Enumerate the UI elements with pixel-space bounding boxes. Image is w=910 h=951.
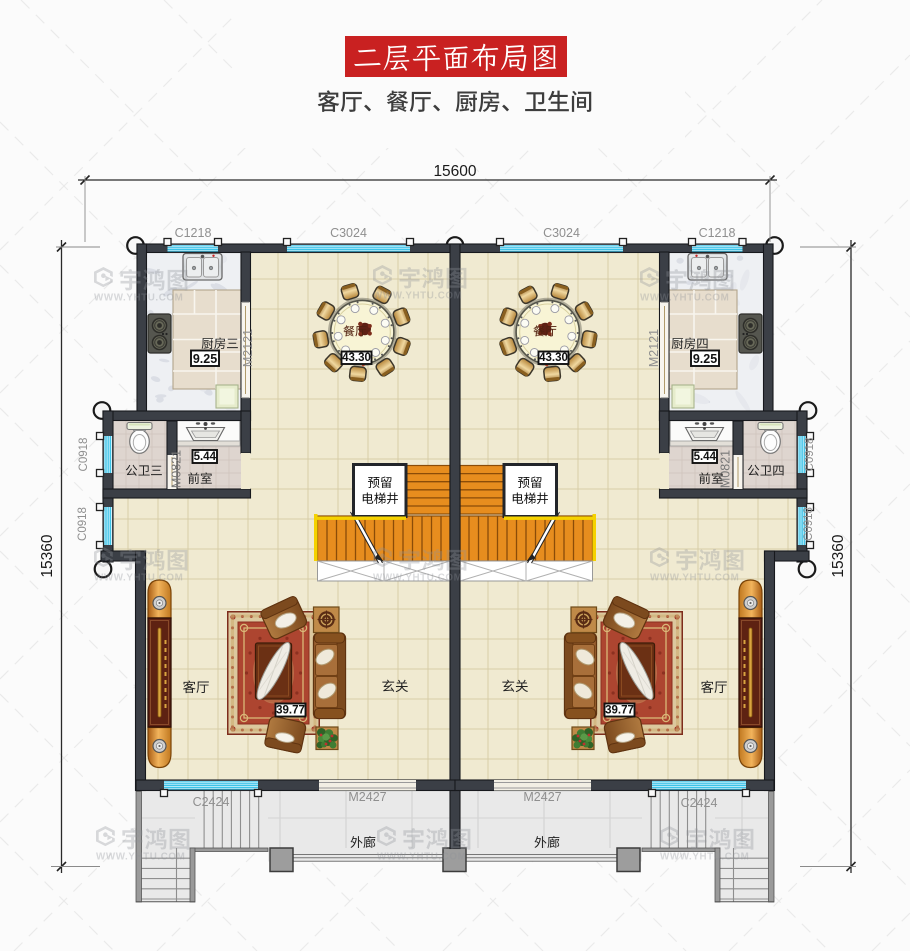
svg-text:C3024: C3024	[330, 226, 367, 240]
svg-text:C1218: C1218	[175, 226, 212, 240]
svg-text:M2427: M2427	[348, 790, 386, 804]
svg-text:43.30: 43.30	[539, 352, 568, 364]
svg-text:M2121: M2121	[241, 329, 255, 367]
svg-text:M2427: M2427	[523, 790, 561, 804]
svg-text:C2424: C2424	[681, 796, 718, 810]
svg-text:C3024: C3024	[543, 226, 580, 240]
svg-text:C0918: C0918	[803, 507, 815, 541]
svg-text:15360: 15360	[830, 534, 847, 577]
svg-text:39.77: 39.77	[605, 704, 634, 716]
svg-text:5.44: 5.44	[194, 451, 217, 463]
svg-text:M2121: M2121	[647, 329, 661, 367]
svg-text:C1218: C1218	[699, 226, 736, 240]
svg-text:43.30: 43.30	[342, 352, 371, 364]
svg-text:C2424: C2424	[193, 795, 230, 809]
svg-text:15360: 15360	[39, 534, 56, 577]
svg-text:9.25: 9.25	[193, 352, 217, 366]
svg-text:9.25: 9.25	[693, 352, 717, 366]
svg-text:M0821: M0821	[719, 450, 733, 488]
svg-text:15600: 15600	[433, 163, 476, 180]
svg-text:C0918: C0918	[78, 438, 90, 472]
svg-text:C0918: C0918	[77, 507, 89, 541]
svg-text:39.77: 39.77	[276, 704, 305, 716]
svg-text:C0918: C0918	[804, 438, 816, 472]
svg-text:M0821: M0821	[170, 450, 184, 488]
svg-text:5.44: 5.44	[694, 451, 717, 463]
